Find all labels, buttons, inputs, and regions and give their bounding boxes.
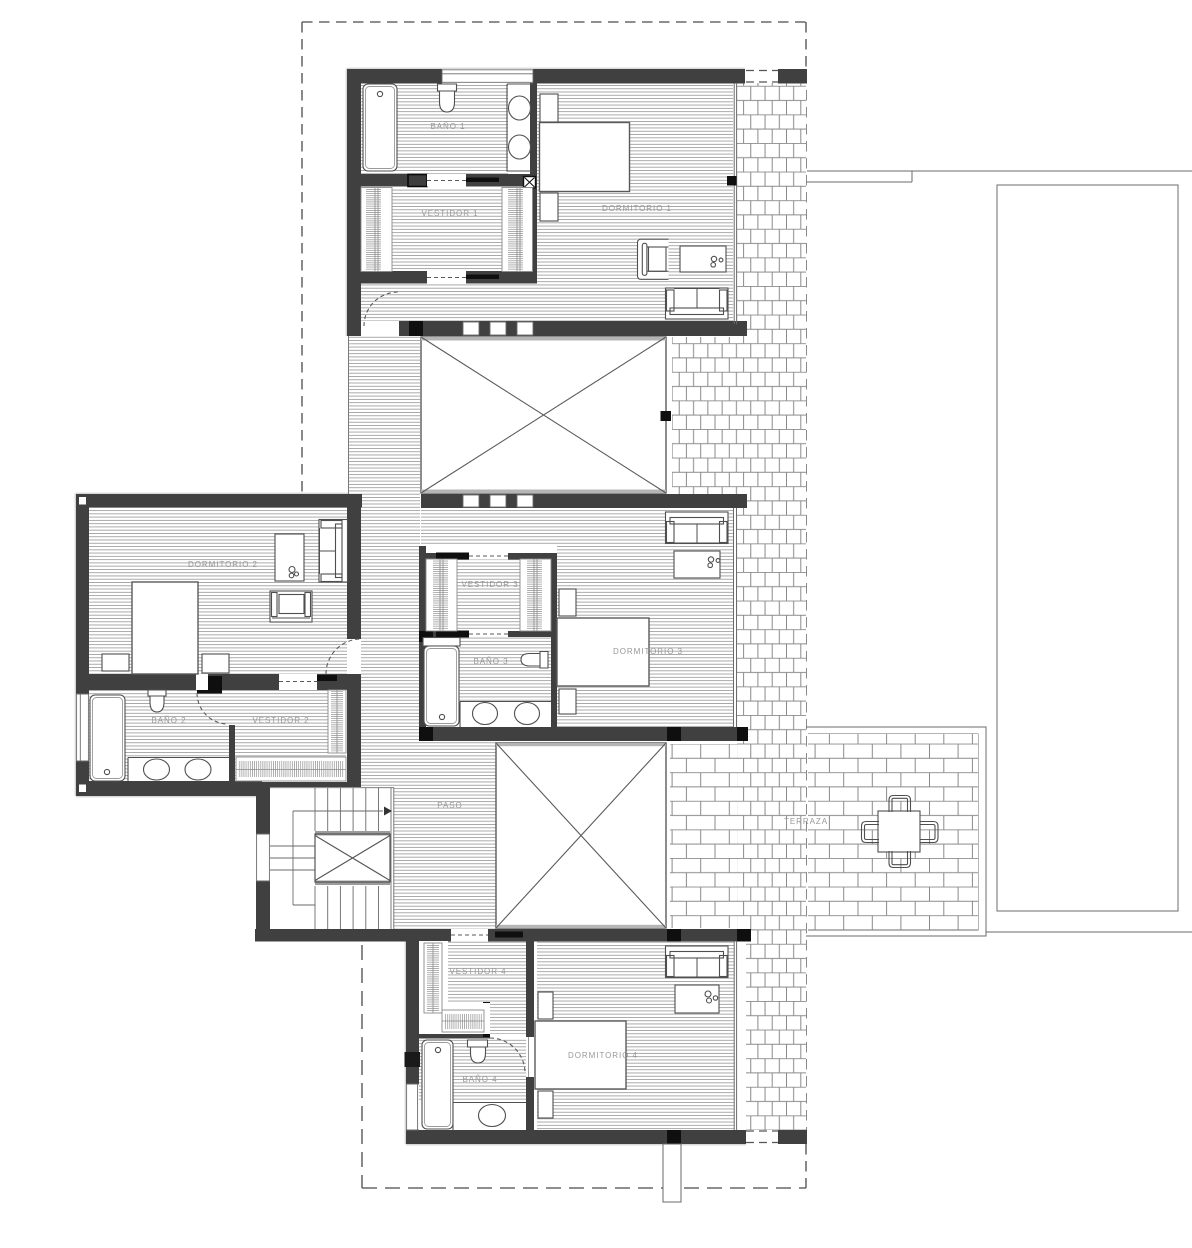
svg-text:PASO: PASO: [437, 801, 462, 810]
svg-text:BAÑO 1: BAÑO 1: [430, 122, 465, 131]
svg-text:VESTIDOR 3: VESTIDOR 3: [461, 580, 518, 589]
svg-text:BAÑO 3: BAÑO 3: [473, 657, 508, 666]
svg-text:VESTIDOR 2: VESTIDOR 2: [252, 716, 309, 725]
svg-text:TERRAZA: TERRAZA: [784, 817, 828, 826]
svg-text:DORMITORIO 3: DORMITORIO 3: [613, 647, 683, 656]
svg-text:BAÑO 4: BAÑO 4: [462, 1075, 497, 1084]
svg-text:DORMITORIO 1: DORMITORIO 1: [602, 204, 672, 213]
svg-text:VESTIDOR 4: VESTIDOR 4: [449, 967, 506, 976]
svg-text:DORMITORIO 4: DORMITORIO 4: [568, 1051, 638, 1060]
svg-text:DORMITORIO 2: DORMITORIO 2: [188, 560, 258, 569]
svg-text:BAÑO 2: BAÑO 2: [151, 716, 186, 725]
svg-text:VESTIDOR 1: VESTIDOR 1: [421, 209, 478, 218]
